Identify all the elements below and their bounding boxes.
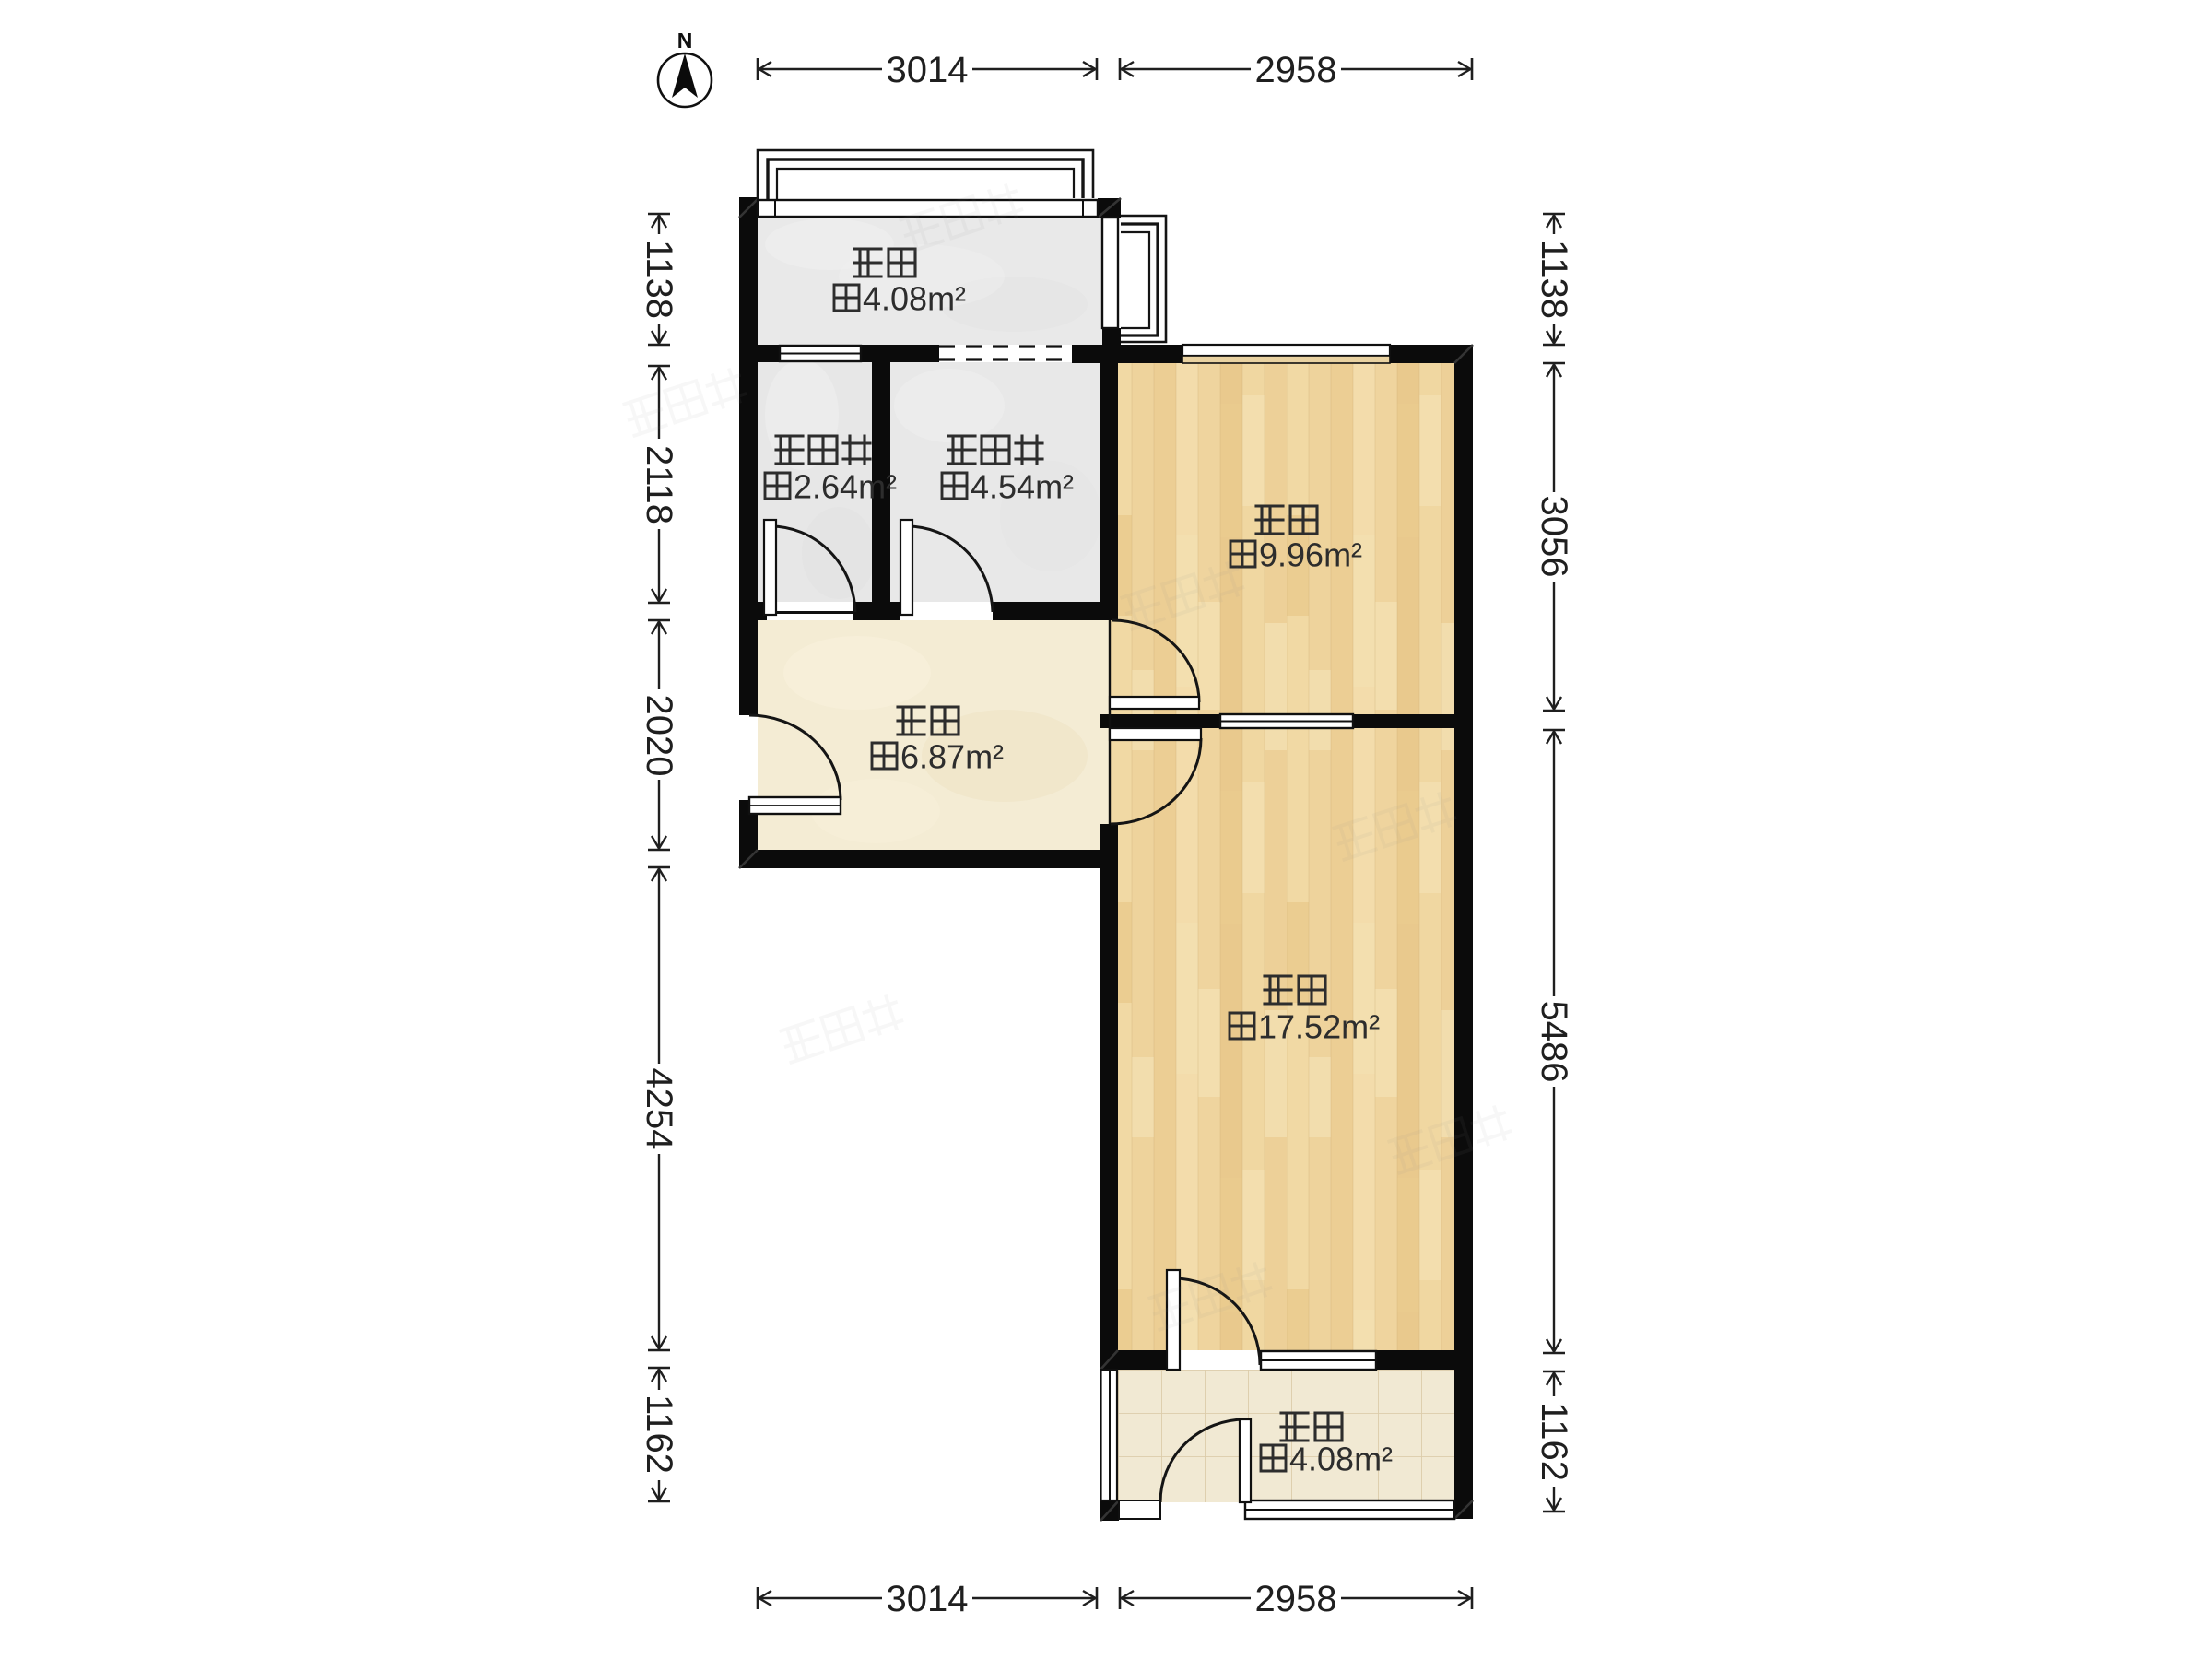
svg-text:N: N xyxy=(677,29,693,53)
svg-text:2118: 2118 xyxy=(639,445,679,524)
svg-text:6.87m²: 6.87m² xyxy=(900,738,1004,776)
svg-text:4.54m²: 4.54m² xyxy=(971,468,1074,506)
svg-text:3014: 3014 xyxy=(887,50,969,90)
svg-text:1138: 1138 xyxy=(639,240,679,319)
svg-text:9.96m²: 9.96m² xyxy=(1259,536,1362,574)
svg-text:4.08m²: 4.08m² xyxy=(863,280,966,318)
svg-text:1162: 1162 xyxy=(639,1394,679,1474)
svg-text:3056: 3056 xyxy=(1534,496,1574,578)
svg-text:17.52m²: 17.52m² xyxy=(1258,1008,1380,1046)
svg-text:3014: 3014 xyxy=(887,1579,969,1619)
svg-text:1138: 1138 xyxy=(1534,240,1574,319)
svg-text:2958: 2958 xyxy=(1255,50,1337,90)
svg-text:4.08m²: 4.08m² xyxy=(1289,1441,1393,1478)
svg-text:2020: 2020 xyxy=(639,695,679,777)
svg-text:4254: 4254 xyxy=(639,1068,679,1150)
svg-text:2.64m²: 2.64m² xyxy=(794,468,897,506)
svg-text:5486: 5486 xyxy=(1534,1001,1574,1083)
svg-text:2958: 2958 xyxy=(1255,1579,1337,1619)
svg-text:1162: 1162 xyxy=(1534,1402,1574,1481)
